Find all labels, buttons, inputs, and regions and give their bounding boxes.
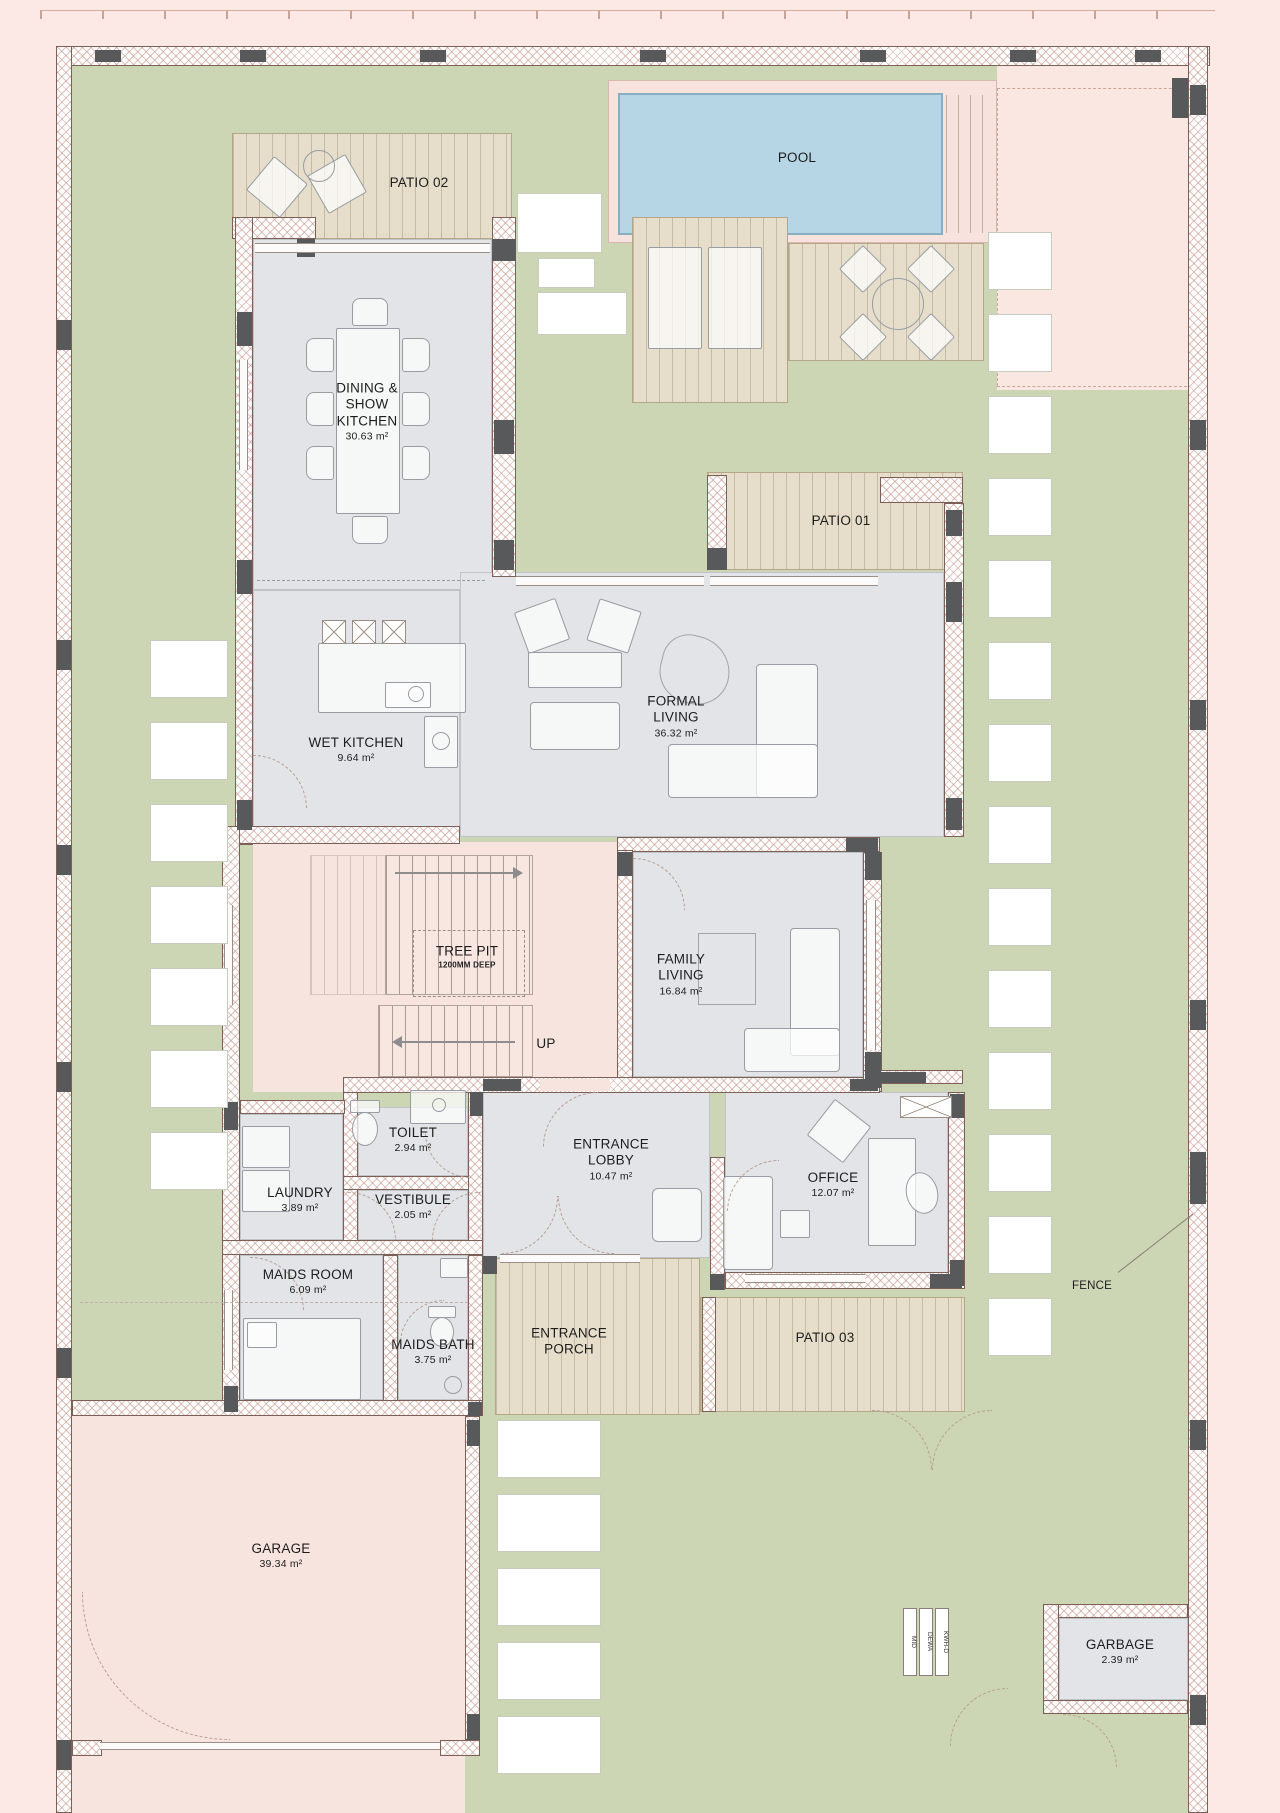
label-maids-bath: MAIDS BATH3.75 m² [358, 1337, 508, 1367]
wall-family-left [617, 850, 633, 1092]
survey-line [40, 10, 1215, 19]
label-fence: FENCE [1062, 1279, 1122, 1293]
bath-vanity [440, 1258, 468, 1278]
column [1172, 78, 1188, 118]
column [617, 852, 632, 876]
label-patio03: PATIO 03 [765, 1330, 885, 1346]
column [946, 510, 962, 536]
column [420, 50, 446, 62]
wall-maids-divider [383, 1255, 398, 1415]
label-vestibule: VESTIBULE2.05 m² [353, 1192, 473, 1222]
dining-chair [402, 446, 430, 480]
lobby-armchair [652, 1188, 702, 1242]
sofa [530, 702, 620, 750]
column [95, 50, 121, 62]
planter-box [537, 292, 627, 335]
planter-box [988, 970, 1052, 1028]
planter-box [517, 193, 602, 253]
wall-patio01-topright [880, 477, 963, 503]
column [494, 540, 514, 570]
floor-plan-canvas: MID DEWA KWH-D POOL PATIO 02 DINING & SH… [0, 0, 1280, 1813]
court-dashed-top [997, 88, 1187, 89]
column [1190, 85, 1206, 115]
column [57, 1062, 71, 1092]
wall-dining-right [492, 217, 516, 577]
planter-box [497, 1420, 601, 1478]
wall-laundry-top [240, 1100, 345, 1114]
column [930, 1274, 962, 1288]
planter-box [988, 232, 1052, 290]
window-formal-top [516, 576, 704, 586]
column [57, 1348, 71, 1378]
cooktop-burner [352, 620, 376, 644]
label-entrance-porch: ENTRANCE PORCH [514, 1326, 624, 1359]
planter-box [988, 560, 1052, 618]
meter-box: DEWA [919, 1608, 933, 1676]
shower-head [444, 1376, 462, 1394]
column [1190, 1420, 1206, 1450]
label-pool: POOL [737, 150, 857, 166]
column [237, 560, 252, 594]
window-dining-top [255, 243, 490, 253]
column [710, 1274, 724, 1290]
sun-lounger [708, 247, 762, 349]
openplan-dashed-line [257, 580, 485, 581]
column [57, 845, 71, 875]
stair-arrowhead-lower [392, 1036, 402, 1048]
label-office: OFFICE12.07 m² [788, 1170, 878, 1200]
planter-box [988, 806, 1052, 864]
dining-chair [402, 338, 430, 372]
stair-arrow-upper [395, 872, 513, 874]
planter-box [988, 1216, 1052, 1274]
planter-box [497, 1642, 601, 1700]
column [240, 50, 266, 62]
wall-garbage-bottom [1043, 1700, 1188, 1714]
label-garbage: GARBAGE2.39 m² [1077, 1637, 1163, 1667]
label-toilet: TOILET2.94 m² [373, 1125, 453, 1155]
planter-box [497, 1568, 601, 1626]
label-patio01: PATIO 01 [781, 513, 901, 529]
boundary-wall-left [56, 46, 72, 1813]
planter-box [988, 642, 1052, 700]
patio-03-deck [700, 1297, 965, 1412]
planter-box [150, 968, 228, 1026]
hall-lobby-opening [540, 1079, 610, 1091]
planter-box [150, 640, 228, 698]
stair-arrowhead-upper [513, 867, 523, 879]
planter-box [497, 1716, 601, 1774]
window-patio01 [710, 576, 878, 586]
column [1190, 700, 1206, 730]
column [237, 800, 252, 830]
planter-box [988, 888, 1052, 946]
column [1010, 50, 1036, 62]
column [707, 548, 727, 570]
kitchen-sink-basin [408, 686, 424, 702]
label-maids-room: MAIDS ROOM6.09 m² [233, 1267, 383, 1297]
column [57, 640, 71, 670]
wall-toilet-bottom [343, 1176, 483, 1190]
column [846, 838, 878, 852]
wall-formal-family [617, 837, 880, 852]
boundary-wall-right [1188, 46, 1208, 1813]
label-patio02: PATIO 02 [359, 175, 479, 191]
column [1190, 1695, 1206, 1725]
patio02-table [303, 150, 335, 182]
pool-steps [946, 95, 994, 233]
planter-box [150, 886, 228, 944]
garage-door [100, 1742, 440, 1750]
column [237, 312, 252, 346]
column [224, 1386, 238, 1412]
planter-box [988, 396, 1052, 454]
dining-chair [306, 338, 334, 372]
column [860, 50, 886, 62]
label-tree-pit: TREE PIT1200MM DEEP [412, 943, 522, 970]
trellis-panel [900, 1096, 952, 1118]
stair-landing-ghost [310, 855, 388, 995]
l-sofa-horizontal [744, 1028, 840, 1072]
kitchen-oven-knob [432, 732, 450, 750]
window-office-bottom [745, 1274, 865, 1283]
cooktop-burner [382, 620, 406, 644]
column [467, 1714, 480, 1740]
door-lobby-porch [500, 1254, 640, 1263]
planter-box [538, 258, 595, 288]
column [1190, 420, 1206, 450]
boundary-wall-top [56, 46, 1210, 66]
label-formal-living: FORMAL LIVING36.32 m² [636, 694, 716, 741]
wall-garbage-top [1043, 1604, 1188, 1618]
column [468, 1402, 482, 1416]
wall-wetkitchen-bottom [222, 826, 460, 844]
vanity-basin [432, 1098, 446, 1112]
column [1135, 50, 1161, 62]
wall-garage-bottom-left [72, 1740, 102, 1756]
column [467, 1420, 480, 1446]
wall-vestibule-bottom [222, 1240, 483, 1255]
planter-box [988, 478, 1052, 536]
dining-chair [352, 298, 388, 326]
column [494, 420, 514, 454]
column [483, 1079, 521, 1091]
column [470, 1092, 483, 1116]
planter-box [150, 804, 228, 862]
column [483, 1256, 497, 1274]
column [57, 1740, 71, 1770]
window-dining-left [239, 360, 248, 470]
cooktop-burner [322, 620, 346, 644]
stair-arrow-lower [402, 1041, 515, 1043]
label-dining: DINING & SHOW KITCHEN30.63 m² [323, 380, 411, 443]
meter-box: KWH-D [935, 1608, 949, 1676]
coffee-table [528, 652, 622, 688]
planter-box [988, 1052, 1052, 1110]
planter-box [150, 1132, 228, 1190]
label-entrance-lobby: ENTRANCE LOBBY10.47 m² [561, 1137, 661, 1184]
column [492, 239, 516, 261]
planter-box [150, 1050, 228, 1108]
planter-box [150, 722, 228, 780]
column [1190, 1152, 1206, 1204]
wall-garage-bottom-right [440, 1740, 480, 1756]
wall-maids-right [468, 1255, 483, 1415]
dining-chair [352, 516, 388, 544]
meter-box: MID [903, 1608, 917, 1676]
wall-porch-divider [702, 1297, 716, 1412]
washing-machine [242, 1126, 290, 1168]
planter-box [497, 1494, 601, 1552]
side-table [780, 1210, 810, 1238]
planter-box [988, 724, 1052, 782]
sun-lounger [648, 247, 702, 349]
deck-table [872, 278, 924, 330]
planter-box [988, 1134, 1052, 1192]
label-family-living: FAMILY LIVING16.84 m² [643, 952, 719, 999]
window-family-right [866, 900, 876, 1050]
label-wet-kitchen: WET KITCHEN9.64 m² [294, 735, 419, 765]
column [946, 582, 962, 622]
column [946, 798, 962, 830]
pillow [247, 1322, 277, 1348]
column [640, 50, 666, 62]
court-dashed-bottom [997, 386, 1187, 387]
wall-garage-top [72, 1400, 480, 1416]
dining-chair [306, 446, 334, 480]
column [950, 1094, 964, 1118]
column [57, 320, 71, 350]
label-garage: GARAGE39.34 m² [226, 1541, 336, 1571]
wall-formal-right [944, 503, 964, 837]
planter-box [988, 314, 1052, 372]
column [870, 1072, 926, 1083]
wall-garbage-left [1043, 1604, 1059, 1714]
l-sofa-horizontal [668, 744, 818, 798]
label-up: UP [526, 1036, 566, 1052]
wall-garage-right [465, 1416, 480, 1740]
column [1190, 1000, 1206, 1030]
label-laundry: LAUNDRY3.89 m² [245, 1185, 355, 1215]
column [865, 852, 881, 880]
planter-box [988, 1298, 1052, 1356]
